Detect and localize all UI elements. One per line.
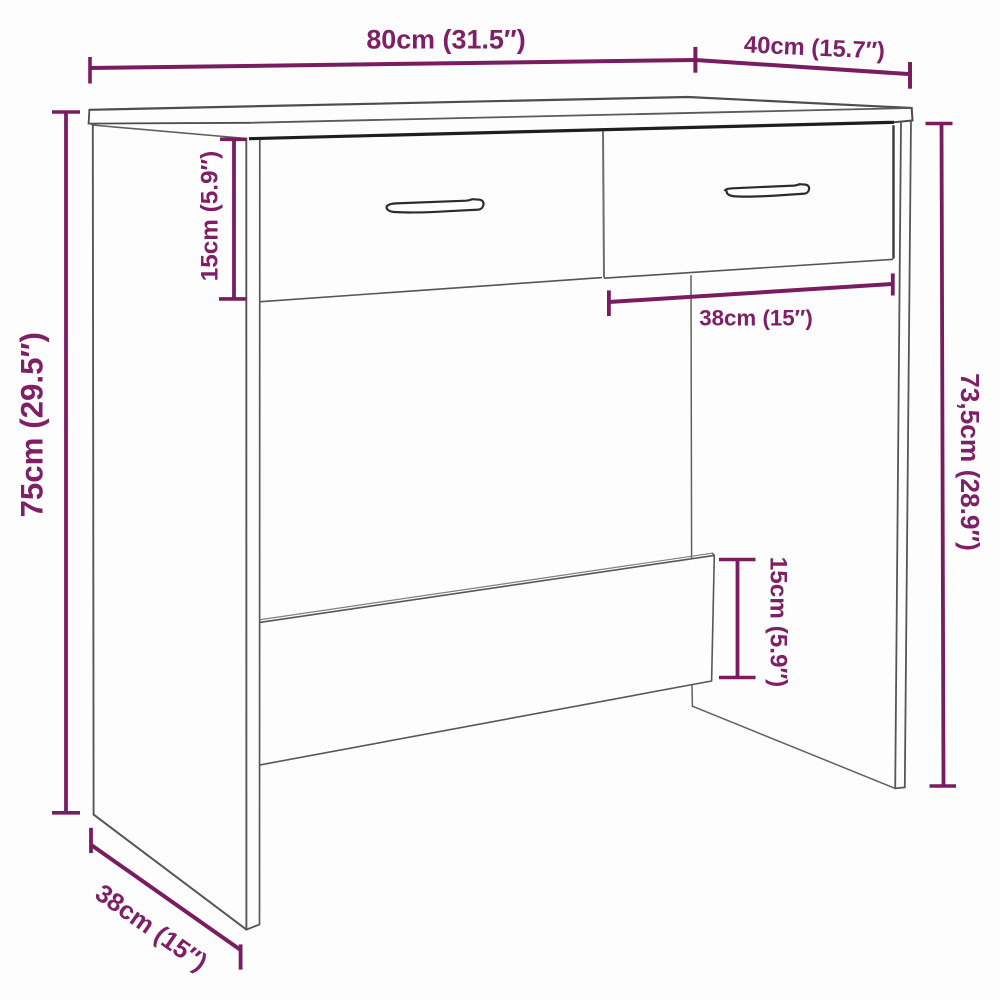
svg-text:15cm (5.9″): 15cm (5.9″) xyxy=(765,557,792,688)
svg-text:75cm (29.5″): 75cm (29.5″) xyxy=(15,332,50,518)
svg-text:73,5cm (28.9″): 73,5cm (28.9″) xyxy=(955,373,985,551)
svg-text:80cm (31.5″): 80cm (31.5″) xyxy=(366,25,525,55)
svg-text:38cm (15″): 38cm (15″) xyxy=(699,305,813,330)
svg-text:15cm (5.9″): 15cm (5.9″) xyxy=(197,151,224,282)
